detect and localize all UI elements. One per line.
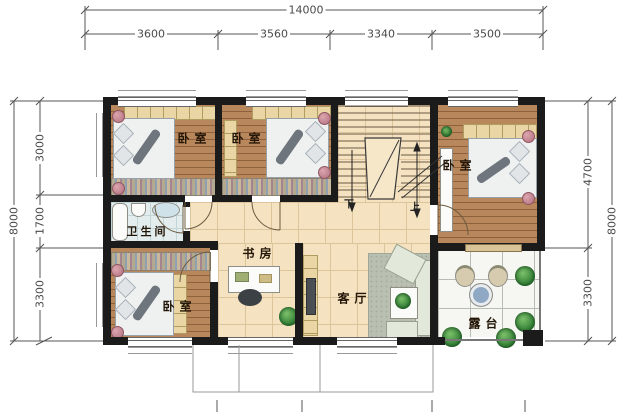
wall-study-living <box>295 243 303 345</box>
window-sill <box>448 90 518 97</box>
dim-right-seg-1: 4700 <box>582 156 595 188</box>
dim-left-seg-3: 3300 <box>34 278 47 310</box>
exterior-wall-right <box>537 97 545 250</box>
window-sill <box>337 347 397 354</box>
tv <box>306 278 316 315</box>
terrace-shrub <box>515 266 535 286</box>
nightstand-plant <box>522 130 535 143</box>
terrace-corner-column <box>523 330 543 346</box>
nightstand-plant <box>112 110 125 123</box>
terrace-shrub <box>442 327 462 347</box>
room-label-terrace: 露台 <box>463 315 502 332</box>
terrace-shrub <box>515 312 535 332</box>
room-label-bedroom-top-left: 卧室 <box>172 130 211 147</box>
desk-chair <box>238 289 262 306</box>
wall-hall-north-c <box>280 195 338 202</box>
window-sill <box>118 90 196 97</box>
floor-plan-canvas: 卧室 卧室 卧室 卧室 卫生间 书房 客厅 露台 下 上 14000 3600 … <box>0 0 640 417</box>
window-sill <box>228 347 293 354</box>
stairs-up-label: 上 <box>410 199 420 214</box>
room-label-bathroom: 卫生间 <box>124 223 169 239</box>
wall-living-terrace <box>430 243 438 345</box>
window <box>128 337 192 347</box>
room-label-bedroom-bottom-left: 卧室 <box>157 298 196 315</box>
terrace-chair <box>455 265 475 287</box>
bedroom-top-middle-rug <box>222 178 332 196</box>
window-sill <box>128 347 192 354</box>
desk-item <box>235 272 249 282</box>
nightstand-plant <box>318 112 331 125</box>
dim-top-seg-1: 3600 <box>135 28 167 41</box>
wall-bed2-stairs <box>331 97 338 202</box>
dim-right-total: 8000 <box>606 205 619 237</box>
terrace-railing-right <box>539 250 541 340</box>
desk-item <box>259 274 272 283</box>
bedroom-bottom-left-rug <box>111 252 211 271</box>
nightstand-plant <box>522 192 535 205</box>
window <box>337 337 397 347</box>
wall-bed1-bed2 <box>215 97 222 202</box>
stairs-down-label: 下 <box>344 196 354 211</box>
wall-bathroom-south <box>103 241 218 248</box>
window <box>246 97 306 107</box>
hallway-floor <box>190 202 430 243</box>
dim-top-seg-3: 3340 <box>365 28 397 41</box>
duvet-roll <box>274 128 304 166</box>
room-label-bedroom-right: 卧室 <box>437 157 476 174</box>
wall-bed4-study-bottom <box>210 282 218 345</box>
dim-left-seg-1: 3000 <box>34 132 47 164</box>
room-label-living: 客厅 <box>332 290 371 307</box>
bed <box>468 138 537 198</box>
window <box>228 337 293 347</box>
bench-seat <box>386 321 418 338</box>
dim-right-seg-2: 3300 <box>582 277 595 309</box>
window <box>345 97 408 107</box>
exterior-wall-left <box>103 97 111 345</box>
wall-bathroom-right-top <box>183 202 190 207</box>
room-label-study: 书房 <box>237 245 276 262</box>
toilet <box>131 203 146 217</box>
window-sill <box>345 90 408 97</box>
terrace-sliding-door <box>465 244 522 252</box>
dim-top-total: 14000 <box>287 4 326 17</box>
terrace-table <box>469 283 493 307</box>
window <box>118 97 196 107</box>
table-plant <box>395 293 411 309</box>
stairwell-floor <box>338 105 430 202</box>
window <box>448 97 518 107</box>
nightstand-plant <box>318 166 331 179</box>
window-sill <box>96 113 103 177</box>
small-plant <box>441 126 452 137</box>
nightstand-plant <box>112 182 125 195</box>
bedroom-top-left-rug <box>111 178 216 196</box>
duvet-roll <box>131 128 161 166</box>
dim-left-total: 8000 <box>8 205 21 237</box>
wall-bed4-study-top <box>210 241 218 250</box>
terrace-chair <box>488 265 508 287</box>
dim-top-seg-4: 3500 <box>471 28 503 41</box>
sink <box>152 202 180 218</box>
nightstand-plant <box>111 264 124 277</box>
room-label-bedroom-top-middle: 卧室 <box>226 130 265 147</box>
window-sill <box>96 263 103 327</box>
window-sill <box>246 90 306 97</box>
dim-left-seg-2: 1700 <box>34 205 47 237</box>
wall-hall-north-a <box>103 195 185 202</box>
wall-hall-north-b <box>212 195 252 202</box>
wall-stairs-bed3 <box>430 97 438 205</box>
duvet-roll <box>475 155 511 184</box>
dim-top-seg-2: 3560 <box>258 28 290 41</box>
wall-bed3-stub <box>430 235 438 243</box>
